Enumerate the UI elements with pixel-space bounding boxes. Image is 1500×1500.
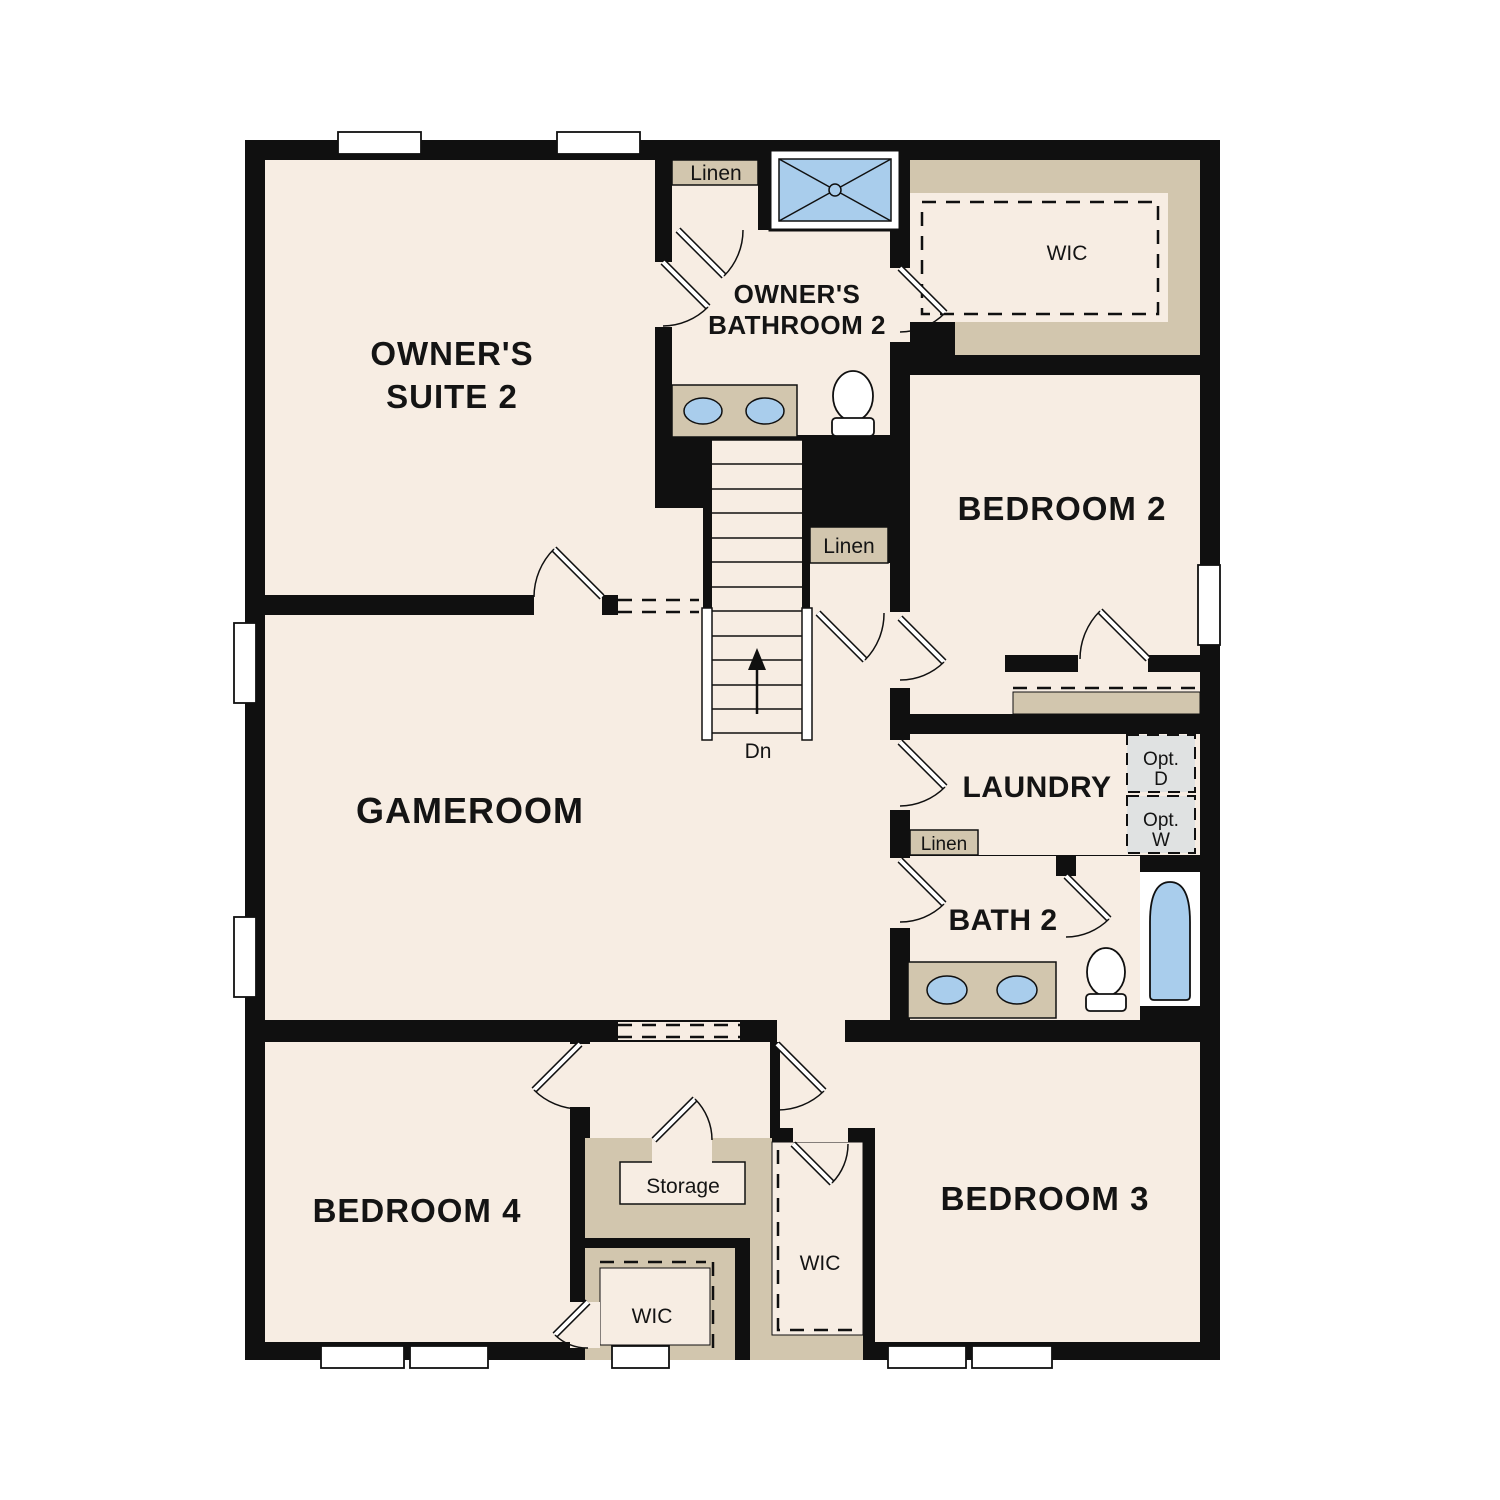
toilet-bowl-2	[1087, 948, 1125, 996]
stairs-down-label: Dn	[745, 740, 772, 763]
stairs	[702, 440, 812, 740]
window-bedroom-4-bottom-2	[410, 1346, 488, 1368]
shower-drain	[829, 184, 841, 196]
linen-bath-label: Linen	[921, 834, 968, 855]
owners-bath-vanity	[672, 385, 797, 437]
window-bedroom-2-right	[1198, 565, 1220, 645]
bath2-sink-left	[927, 976, 967, 1004]
hall-pocket-floor	[810, 563, 890, 615]
wic-top-band-bottom	[955, 322, 1200, 355]
tub-basin	[1150, 882, 1190, 1000]
wic-bed4-label: WIC	[632, 1305, 673, 1328]
window-gameroom-left-1	[234, 623, 256, 703]
owners-suite-2-label-line2: SUITE 2	[386, 378, 518, 415]
window-suite-top-2	[557, 132, 640, 154]
stair-rail-left	[702, 608, 712, 740]
bedroom-3-label: BEDROOM 3	[941, 1180, 1150, 1217]
opt-dryer-label-line1: Opt.	[1143, 749, 1179, 770]
owners-bathroom-2-label-line1: OWNER'S	[734, 279, 861, 309]
bedroom-2-label: BEDROOM 2	[958, 490, 1167, 527]
vestibule-floor	[590, 1042, 770, 1138]
stair-rail-right	[802, 608, 812, 740]
bedroom-2-closet-floor-left	[910, 692, 1013, 714]
linen-top-label: Linen	[690, 162, 741, 185]
wic-top-floor	[910, 193, 1168, 322]
bedroom-3-nook-floor	[780, 1042, 875, 1128]
wic-bed3-label: WIC	[800, 1252, 841, 1275]
wic-top-label: WIC	[1047, 242, 1088, 265]
laundry-label: LAUNDRY	[962, 771, 1111, 804]
gameroom-label: GAMEROOM	[356, 790, 584, 831]
window-bedroom-4-bottom-1	[321, 1346, 404, 1368]
wic-top-band-top	[910, 160, 1200, 193]
bath-2-label: BATH 2	[948, 904, 1057, 937]
owners-vanity-sink-right	[746, 398, 784, 424]
opt-dryer-label-line2: D	[1154, 769, 1168, 790]
floorplan-page: OWNER'S SUITE 2 OWNER'S BATHROOM 2 WIC B…	[0, 0, 1500, 1500]
toilet-tank-1	[832, 418, 874, 436]
opening-bedroom-3	[777, 1020, 845, 1042]
bedroom-2-closet-shelf	[1013, 692, 1200, 714]
storage-label: Storage	[646, 1175, 720, 1198]
floorplan-drawing: OWNER'S SUITE 2 OWNER'S BATHROOM 2 WIC B…	[0, 0, 1500, 1500]
toilet-tank-2	[1086, 994, 1126, 1011]
window-bedroom-3-bottom-2	[972, 1346, 1052, 1368]
bath-2-toilet	[1086, 948, 1126, 1011]
owners-vanity-sink-left	[684, 398, 722, 424]
opening-wic-bed3	[793, 1128, 848, 1142]
opt-washer-label-line2: W	[1152, 830, 1170, 851]
shower	[770, 150, 900, 230]
bath-2-tub	[1140, 872, 1200, 1006]
window-suite-top-1	[338, 132, 421, 154]
window-gameroom-left-2	[234, 917, 256, 997]
linen-hall-label: Linen	[823, 535, 874, 558]
owners-bathroom-2-label-line2: BATHROOM 2	[708, 310, 886, 340]
opt-washer-label-line1: Opt.	[1143, 810, 1179, 831]
opening-suite-to-hall	[534, 595, 602, 615]
linen-top-floor	[672, 185, 758, 230]
bedroom-4-label: BEDROOM 4	[313, 1192, 522, 1229]
bath-2-vanity	[908, 962, 1056, 1018]
window-wic-bed4-bottom	[612, 1346, 669, 1368]
window-bedroom-3-bottom-1	[888, 1346, 966, 1368]
toilet-bowl-1	[833, 371, 873, 421]
storage-door-gap	[652, 1138, 712, 1164]
opening-bedroom-2-closet	[1078, 655, 1148, 672]
bedroom-2-floor-ext	[910, 655, 1005, 672]
bath2-sink-right	[997, 976, 1037, 1004]
bedroom-2-closet-floor	[910, 672, 1200, 692]
owners-suite-2-label-line1: OWNER'S	[370, 335, 533, 372]
owners-bath-toilet	[832, 371, 874, 436]
wic-top-band-right	[1168, 193, 1200, 322]
